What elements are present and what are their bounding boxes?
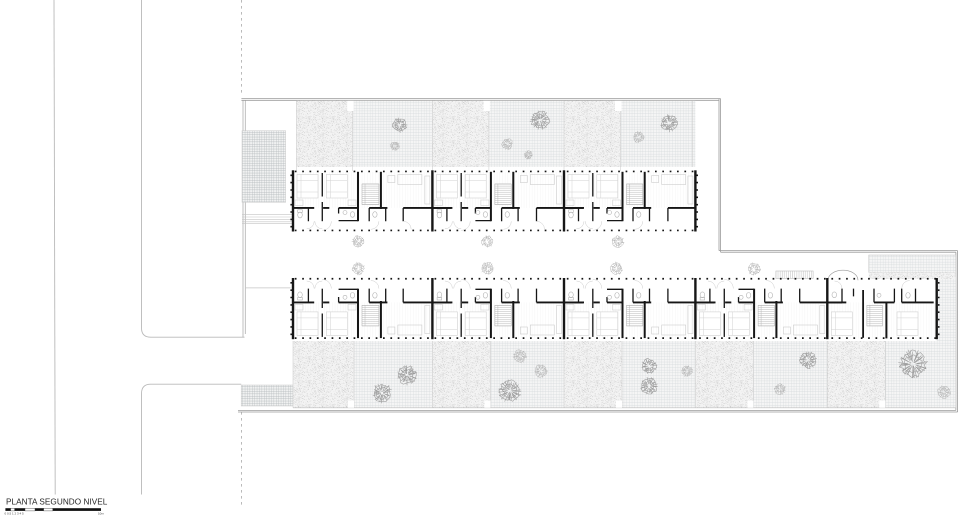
svg-text:PLANTA SEGUNDO NIVEL: PLANTA SEGUNDO NIVEL [6,498,108,507]
svg-text:0 0.5 1 2 3 4: 0 0.5 1 2 3 4 5 [5,512,25,516]
svg-text:10m: 10m [98,512,104,516]
